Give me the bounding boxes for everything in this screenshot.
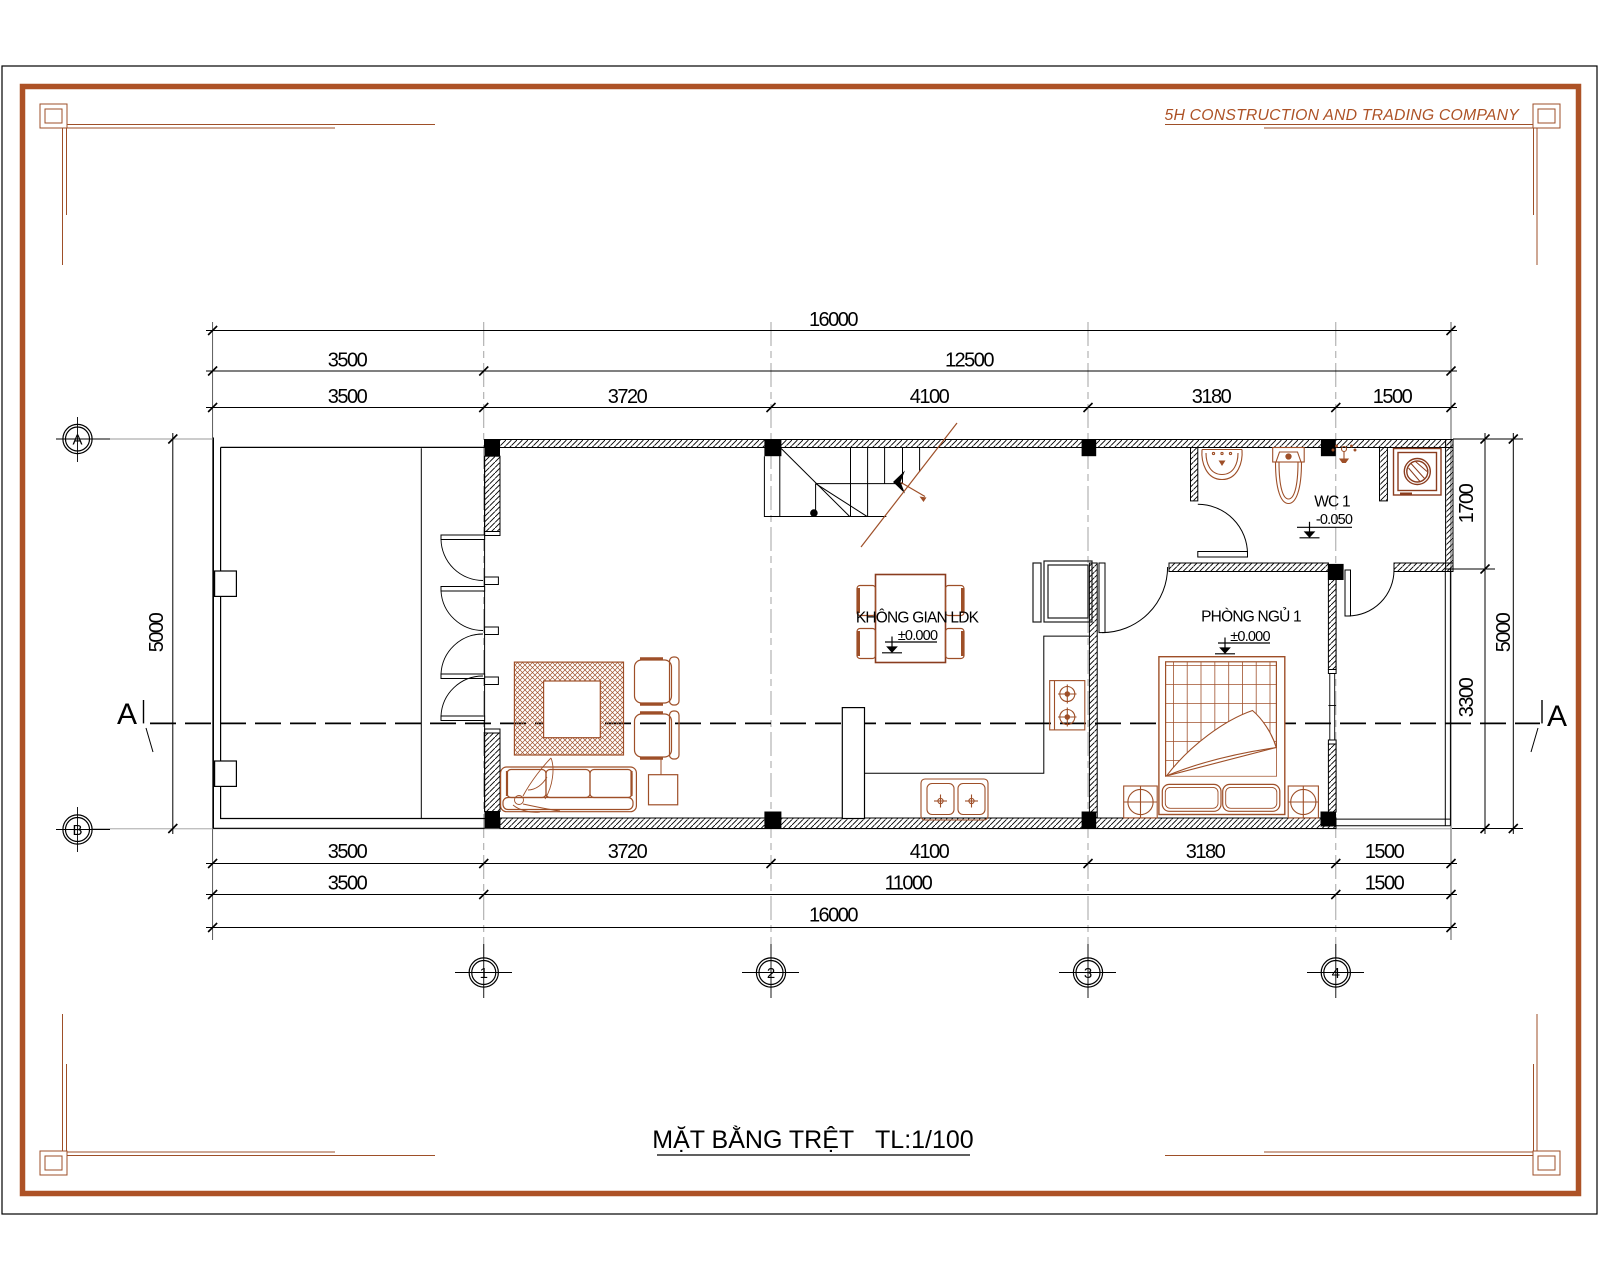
svg-text:16000: 16000 [809, 905, 858, 927]
svg-text:WC 1: WC 1 [1314, 494, 1350, 511]
svg-text:3180: 3180 [1192, 386, 1232, 408]
svg-text:4: 4 [1332, 965, 1340, 982]
svg-text:1500: 1500 [1365, 841, 1405, 863]
svg-text:4100: 4100 [910, 386, 950, 408]
svg-text:4100: 4100 [910, 841, 950, 863]
svg-text:2: 2 [767, 965, 775, 982]
svg-text:3720: 3720 [608, 841, 648, 863]
svg-text:3720: 3720 [608, 386, 648, 408]
svg-text:1500: 1500 [1373, 386, 1413, 408]
svg-text:PHÒNG NGỦ 1: PHÒNG NGỦ 1 [1201, 608, 1301, 626]
svg-text:B: B [72, 822, 82, 839]
svg-text:1: 1 [480, 965, 488, 982]
svg-text:MẶT BẰNG TRỆT TL:1/100: MẶT BẰNG TRỆT TL:1/100 [652, 1125, 973, 1154]
svg-text:5000: 5000 [1493, 612, 1515, 652]
svg-text:3500: 3500 [328, 841, 368, 863]
svg-text:5H CONSTRUCTION AND TRADING CO: 5H CONSTRUCTION AND TRADING COMPANY [1164, 107, 1520, 124]
svg-text:1500: 1500 [1365, 873, 1405, 895]
svg-text:1700: 1700 [1456, 483, 1478, 523]
svg-text:KHÔNG GIAN LDK: KHÔNG GIAN LDK [856, 610, 980, 627]
svg-text:3: 3 [1084, 965, 1092, 982]
svg-text:A: A [72, 432, 82, 449]
svg-text:3180: 3180 [1186, 841, 1226, 863]
svg-text:3500: 3500 [328, 386, 368, 408]
svg-text:A: A [117, 698, 137, 731]
svg-text:3300: 3300 [1456, 677, 1478, 717]
svg-text:-0.050: -0.050 [1316, 512, 1353, 528]
svg-text:3500: 3500 [328, 873, 368, 895]
svg-text:A: A [1547, 700, 1567, 733]
svg-text:5000: 5000 [146, 612, 168, 652]
svg-text:3500: 3500 [328, 350, 368, 372]
svg-text:16000: 16000 [809, 309, 858, 331]
svg-text:11000: 11000 [885, 873, 933, 895]
svg-text:12500: 12500 [945, 350, 994, 372]
